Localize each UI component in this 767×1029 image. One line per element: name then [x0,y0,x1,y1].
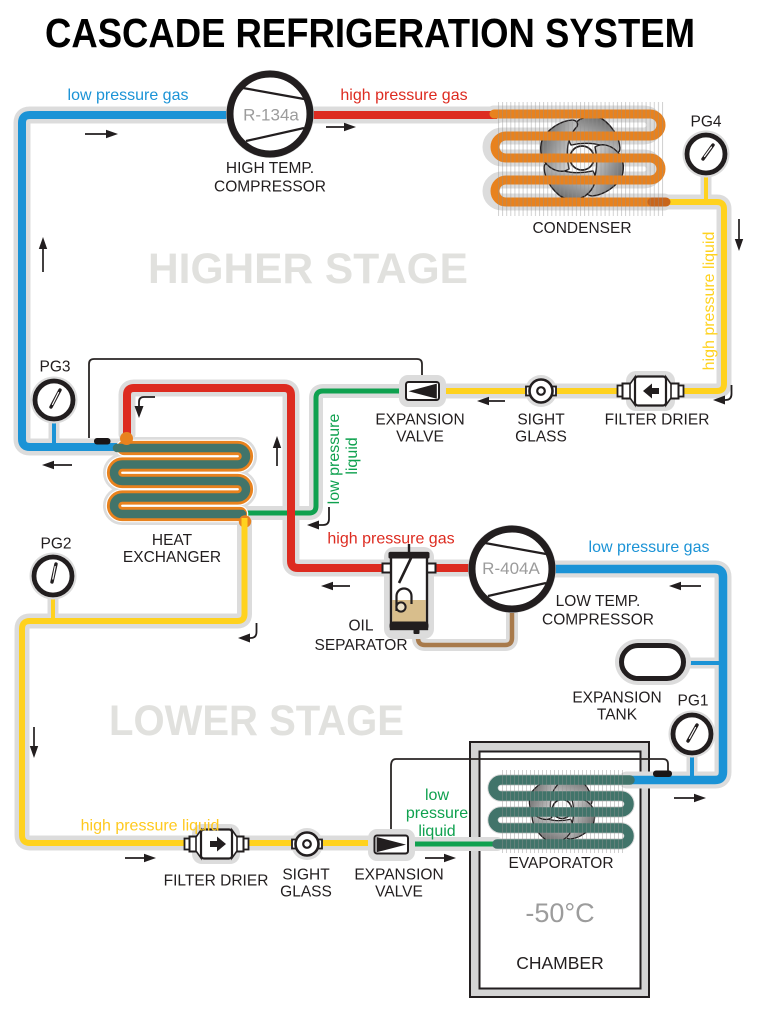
svg-text:EXPANSION: EXPANSION [375,412,464,429]
svg-text:CHAMBER: CHAMBER [516,953,604,973]
svg-text:SIGHT: SIGHT [517,412,565,429]
svg-text:HEAT: HEAT [152,532,193,549]
svg-text:GLASS: GLASS [280,884,332,901]
svg-text:low pressure gas: low pressure gas [589,539,710,556]
svg-text:PG1: PG1 [677,693,708,710]
svg-text:LOWER STAGE: LOWER STAGE [109,697,404,745]
svg-text:FILTER DRIER: FILTER DRIER [164,873,269,890]
svg-text:R-134a: R-134a [243,106,299,125]
svg-text:R-404A: R-404A [482,559,540,578]
svg-text:high pressure liquid: high pressure liquid [701,232,718,371]
svg-text:high pressure gas: high pressure gas [327,531,454,548]
svg-text:LOW TEMP.: LOW TEMP. [556,593,641,610]
svg-text:VALVE: VALVE [375,884,423,901]
svg-text:CASCADE REFRIGERATION SYSTEM: CASCADE REFRIGERATION SYSTEM [45,10,695,56]
svg-text:EXCHANGER: EXCHANGER [123,549,221,566]
svg-text:TANK: TANK [597,707,638,724]
svg-text:PG2: PG2 [40,536,71,553]
svg-text:liquid: liquid [418,823,455,840]
svg-text:EXPANSION: EXPANSION [572,690,661,707]
svg-text:COMPRESSOR: COMPRESSOR [214,179,326,196]
svg-text:EVAPORATOR: EVAPORATOR [508,855,613,872]
svg-text:VALVE: VALVE [396,429,444,446]
svg-text:high pressure liquid: high pressure liquid [81,818,220,835]
svg-text:low pressure gas: low pressure gas [68,87,189,104]
svg-text:GLASS: GLASS [515,429,567,446]
svg-text:CONDENSER: CONDENSER [532,220,631,237]
svg-text:SIGHT: SIGHT [282,867,330,884]
svg-text:liquid: liquid [344,437,361,474]
svg-text:EXPANSION: EXPANSION [354,867,443,884]
svg-text:SEPARATOR: SEPARATOR [314,637,407,654]
svg-text:PG3: PG3 [39,359,70,376]
svg-text:-50°C: -50°C [525,898,594,928]
svg-text:pressure: pressure [406,805,468,822]
svg-text:HIGH TEMP.: HIGH TEMP. [226,160,314,177]
svg-text:low: low [425,787,449,804]
svg-text:FILTER DRIER: FILTER DRIER [605,412,710,429]
svg-text:COMPRESSOR: COMPRESSOR [542,612,654,629]
svg-text:high pressure gas: high pressure gas [340,87,467,104]
svg-text:PG4: PG4 [690,114,721,131]
svg-text:OIL: OIL [349,618,374,635]
svg-text:low pressure: low pressure [326,414,343,505]
svg-text:HIGHER STAGE: HIGHER STAGE [148,245,468,293]
